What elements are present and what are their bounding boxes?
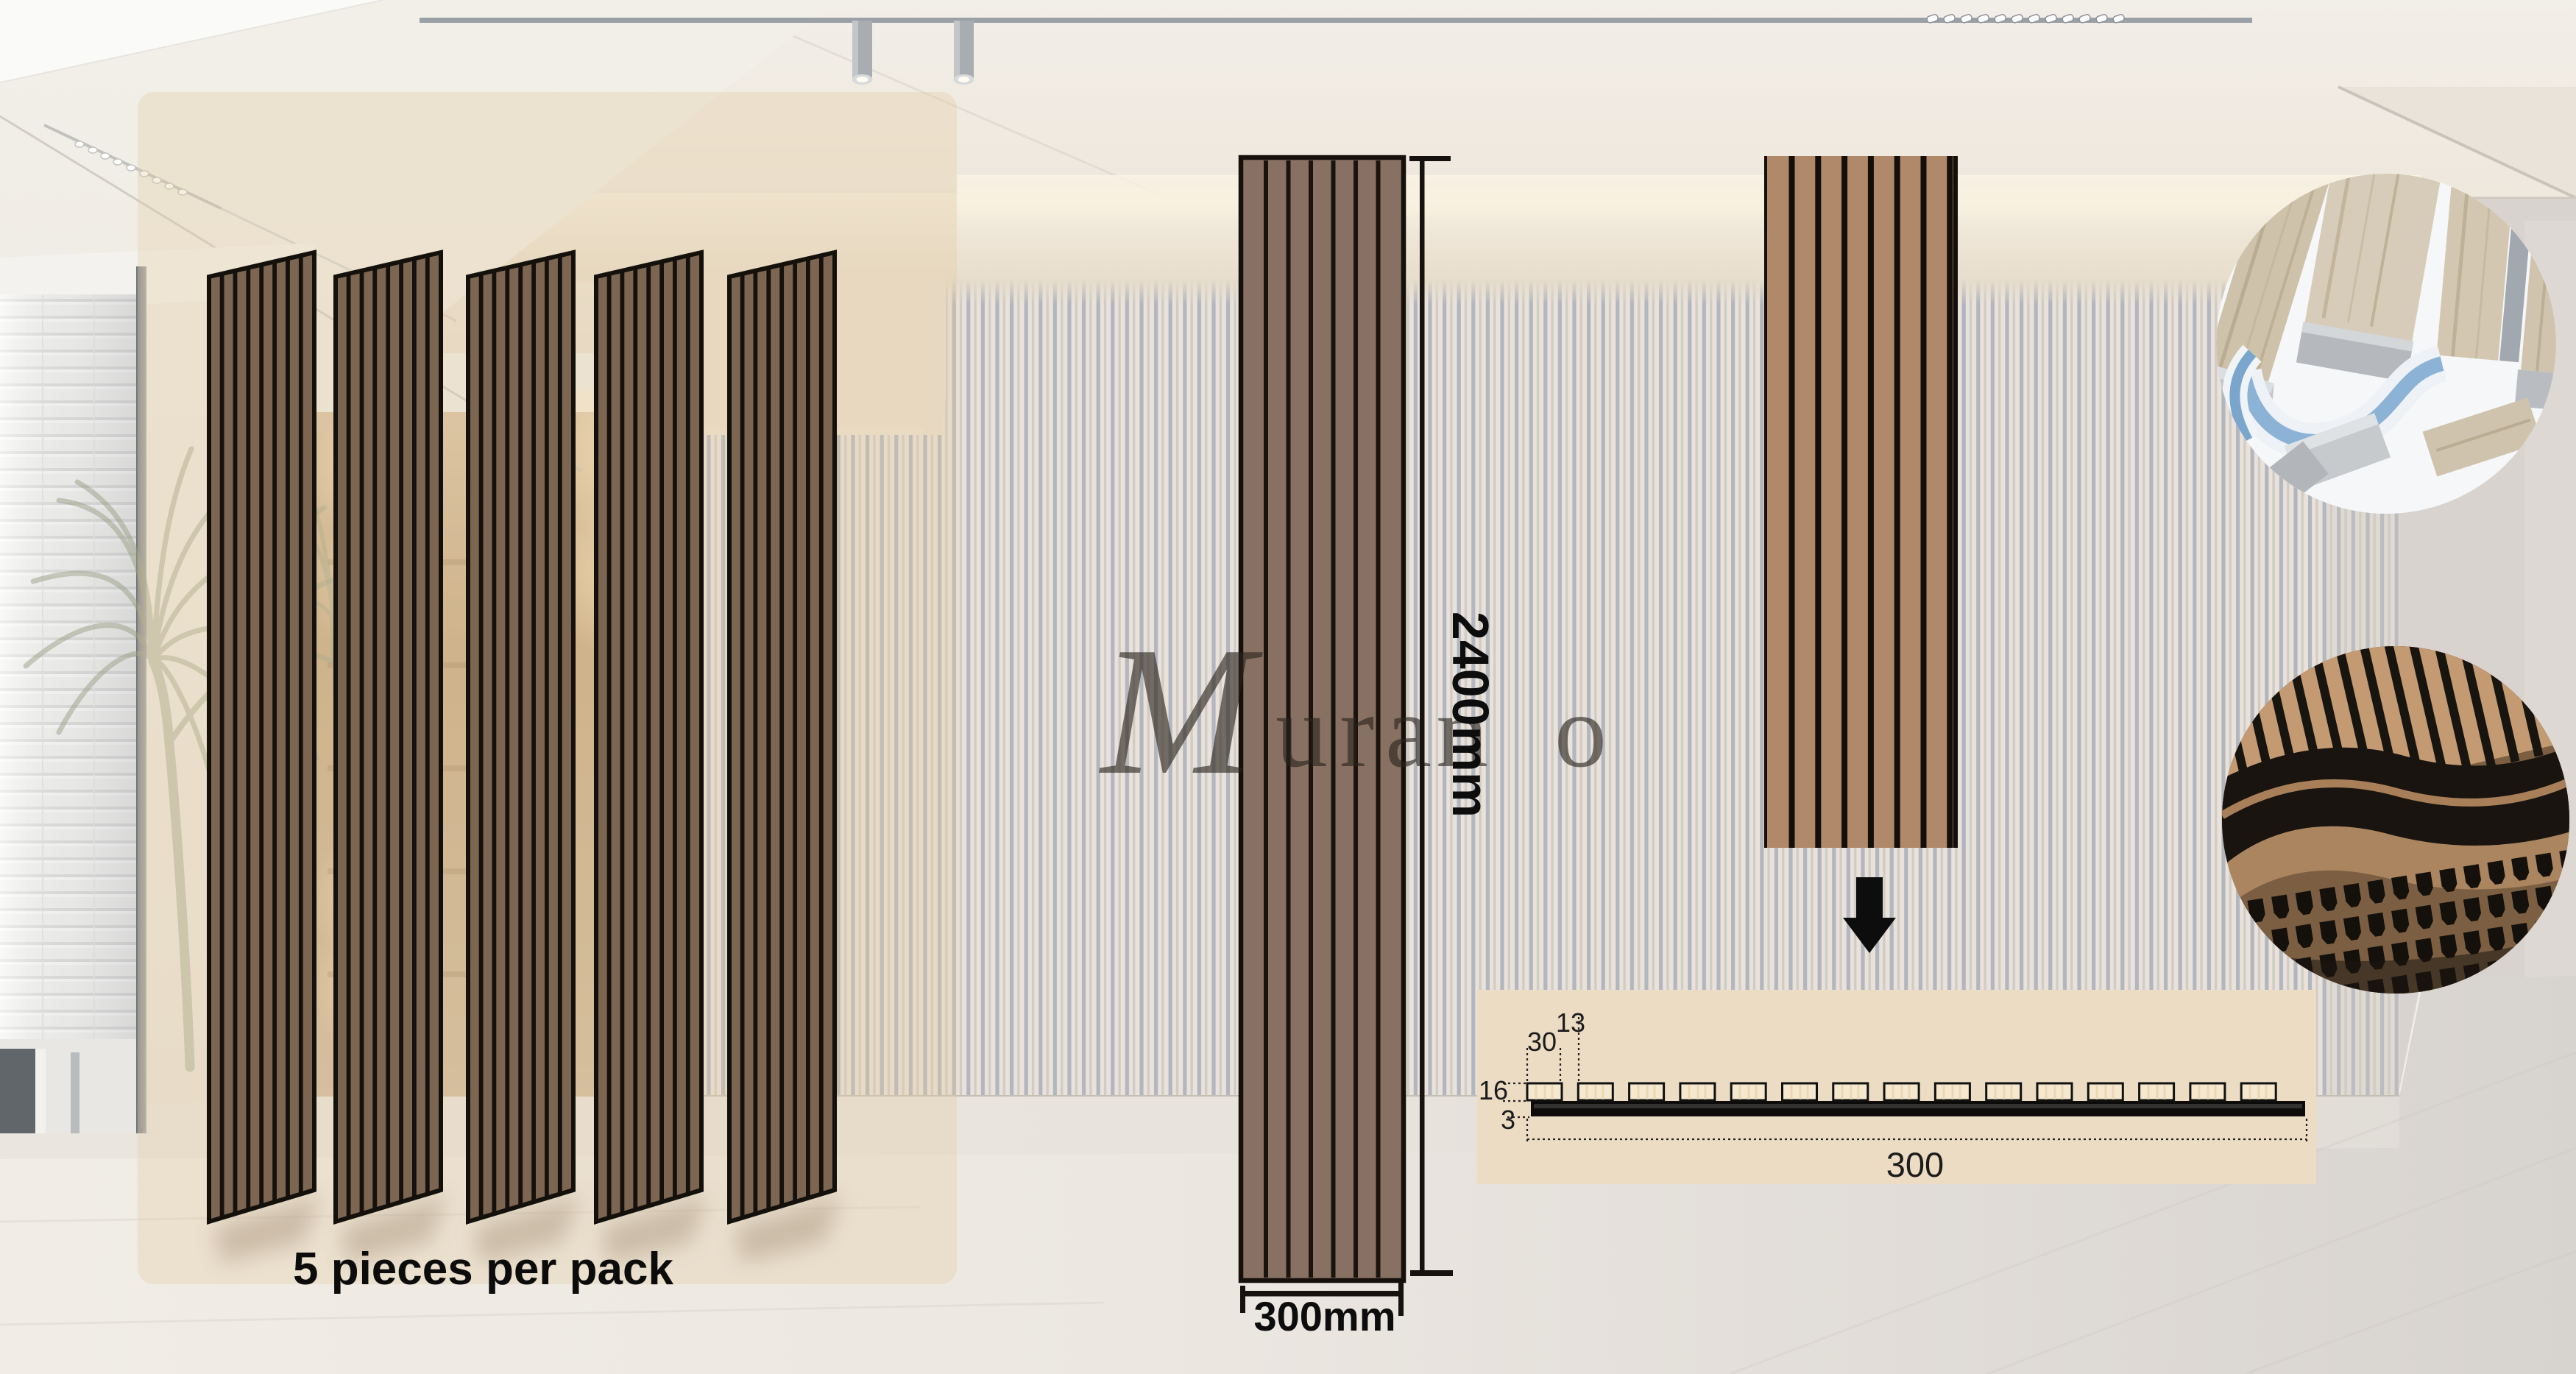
svg-text:30: 30	[1527, 1027, 1557, 1057]
svg-text:M: M	[1099, 609, 1263, 813]
svg-text:300: 300	[1886, 1145, 1944, 1184]
svg-text:a: a	[1385, 673, 1432, 789]
svg-text:13: 13	[1556, 1008, 1585, 1038]
svg-text:5 pieces per pack: 5 pieces per pack	[293, 1244, 673, 1295]
svg-text:u: u	[1275, 673, 1328, 789]
svg-text:16: 16	[1479, 1075, 1508, 1105]
svg-text:300mm: 300mm	[1253, 1293, 1395, 1339]
svg-text:3: 3	[1501, 1105, 1515, 1135]
svg-text:2400mm: 2400mm	[1442, 612, 1499, 818]
svg-text:r: r	[1340, 673, 1374, 789]
svg-text:o: o	[1554, 673, 1607, 789]
